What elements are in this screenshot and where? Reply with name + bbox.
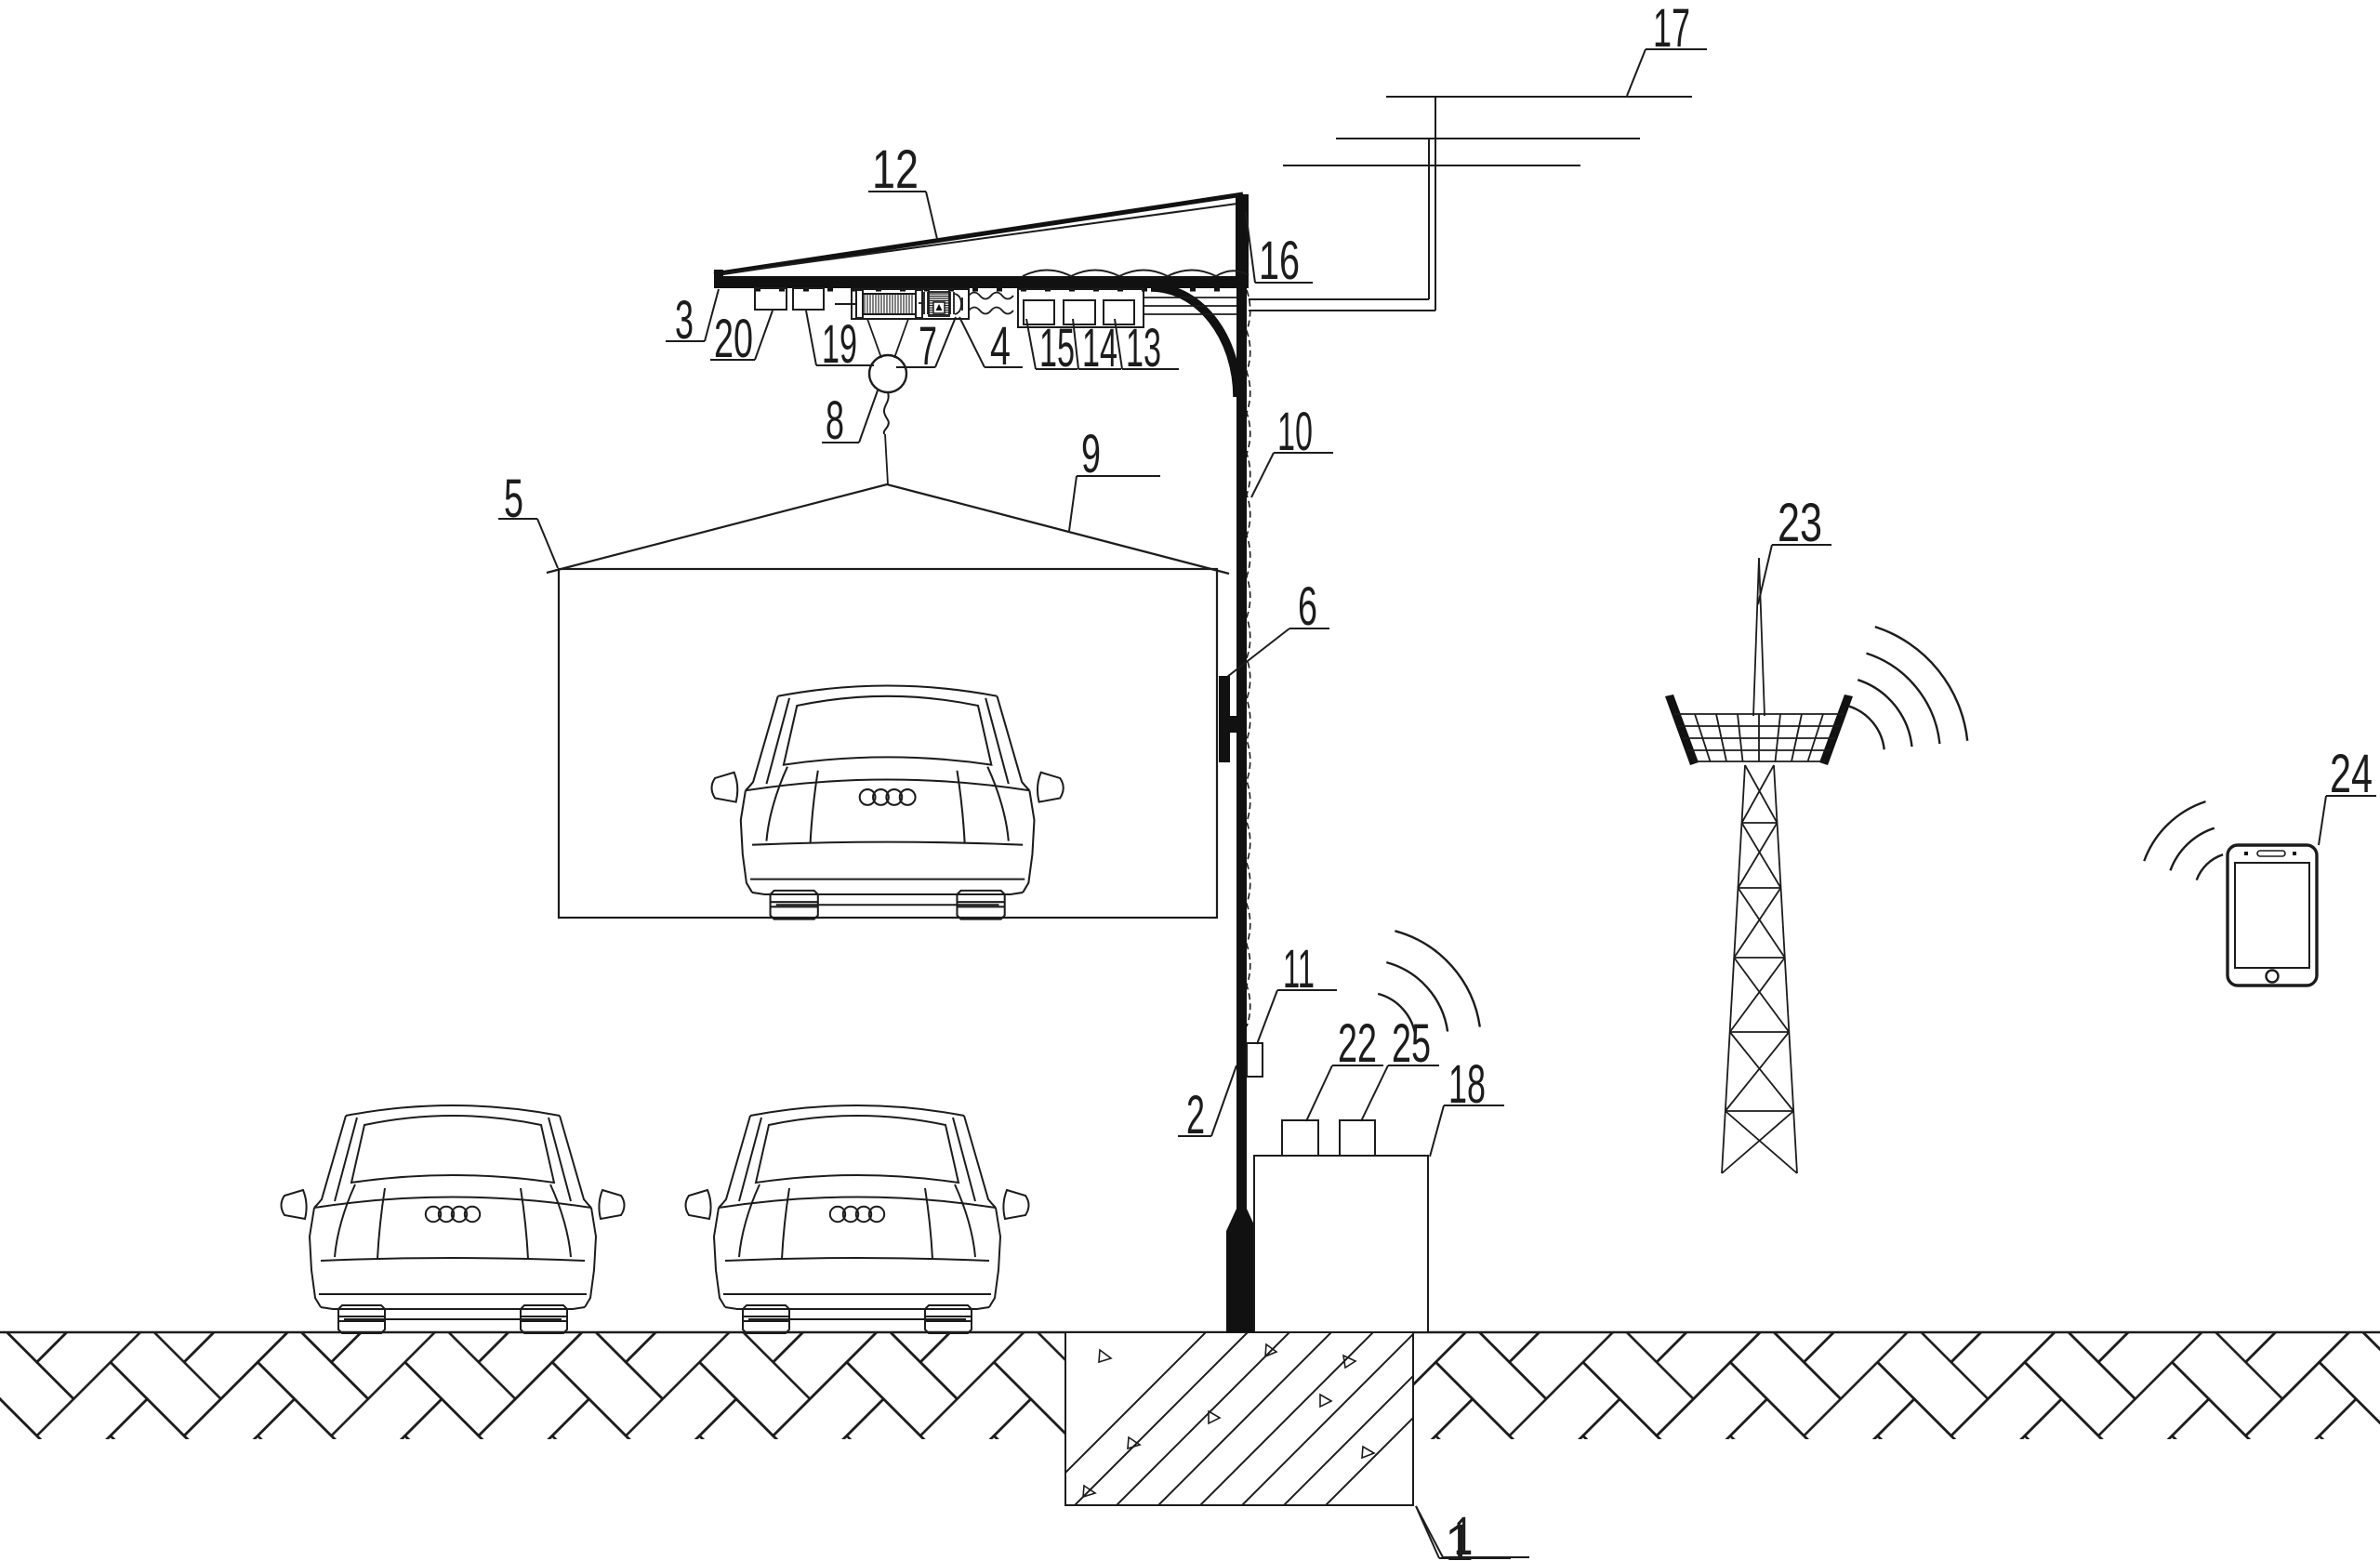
svg-text:1: 1 bbox=[1454, 1506, 1473, 1561]
svg-text:5: 5 bbox=[504, 469, 523, 529]
